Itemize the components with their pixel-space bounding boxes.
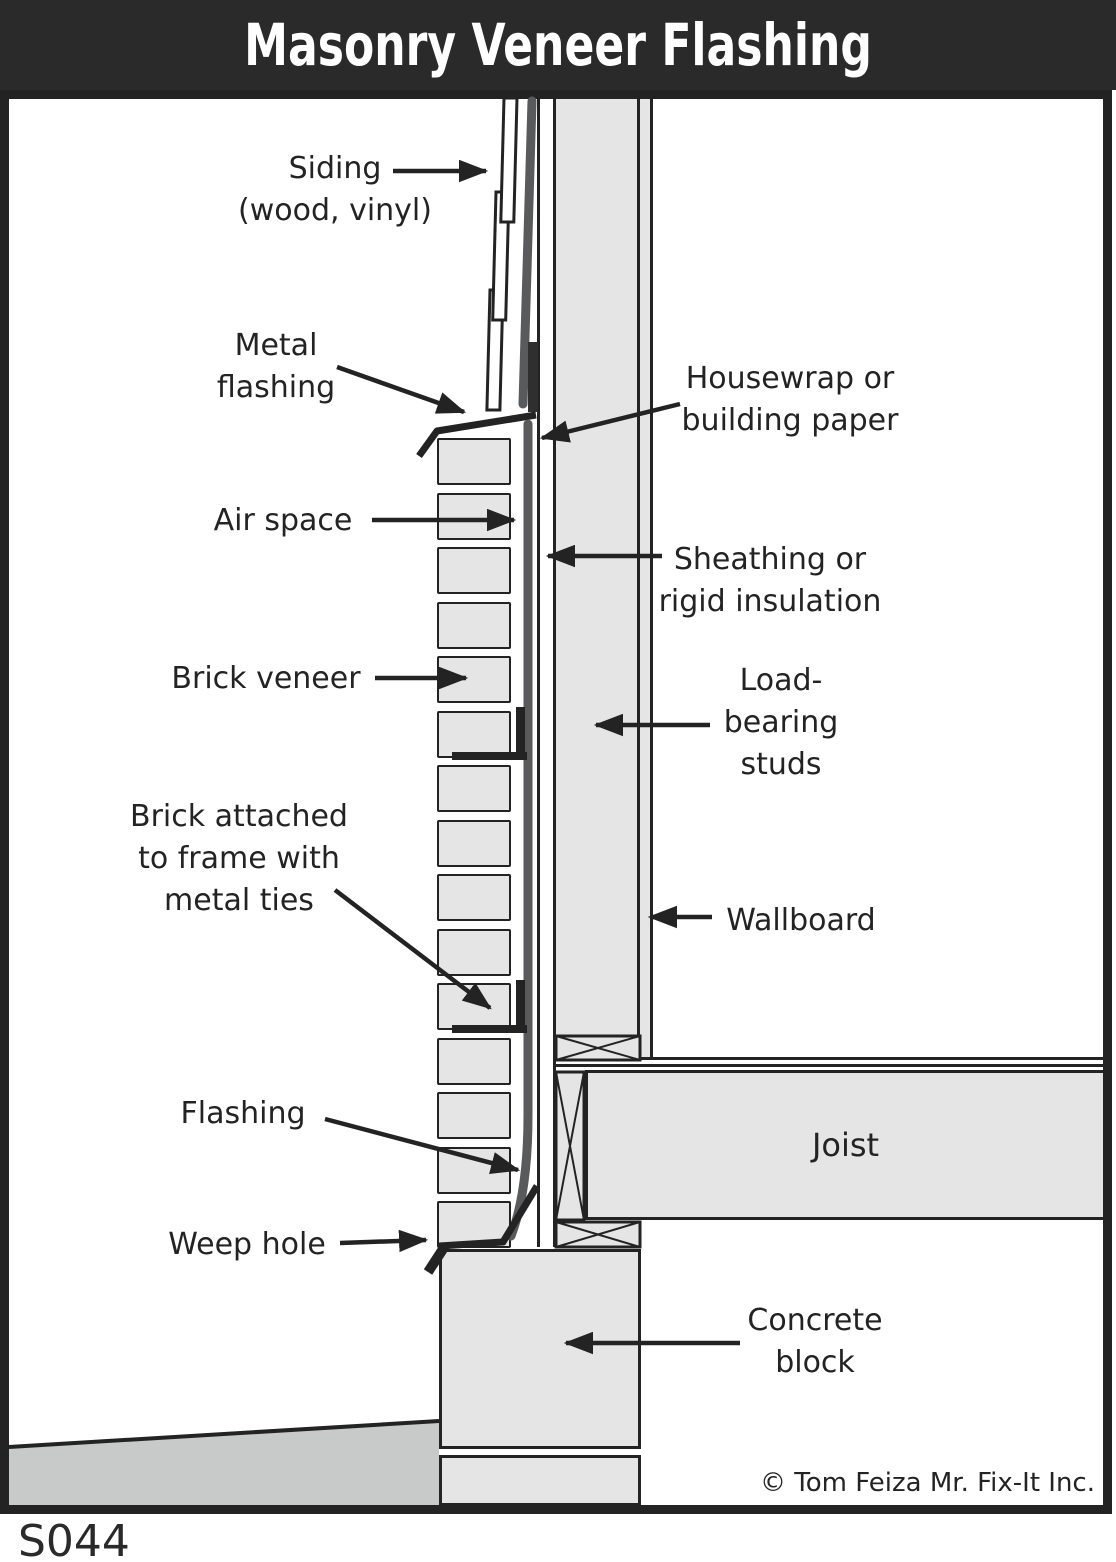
air-space-label: Air space (173, 500, 393, 542)
joist-box: Joist (585, 1070, 1106, 1220)
brick (437, 656, 511, 703)
subfloor-line-bottom (553, 1064, 1106, 1067)
brick (437, 1147, 511, 1194)
brick (437, 874, 511, 921)
rim-blocking-xbox (556, 1072, 584, 1220)
brick (437, 711, 511, 758)
housewrap-label: Housewrap or building paper (640, 358, 940, 442)
wallboard-label: Wallboard (676, 900, 926, 942)
concrete-block-label: Concrete block (690, 1300, 940, 1384)
brick (437, 493, 511, 540)
flashing-label: Flashing (118, 1093, 368, 1135)
page-title: Masonry Veneer Flashing (244, 11, 872, 79)
metal-ties-label: Brick attached to frame with metal ties (114, 796, 364, 922)
brick (437, 1038, 511, 1085)
siding-boards (487, 98, 517, 410)
concrete-block-upper (439, 1249, 641, 1449)
weep-hole-label: Weep hole (122, 1224, 372, 1266)
sheathing-label: Sheathing or rigid insulation (620, 539, 920, 623)
concrete-block-lower (439, 1455, 641, 1506)
brick (437, 602, 511, 649)
subfloor-line-top (553, 1057, 1106, 1060)
brick (437, 1201, 511, 1248)
copyright-text: © Tom Feiza Mr. Fix-It Inc. (640, 1468, 1095, 1498)
sill-plate-xbox (556, 1222, 640, 1247)
brick-veneer-label: Brick veneer (141, 658, 391, 700)
siding-label: Siding (wood, vinyl) (185, 148, 485, 232)
brick (437, 820, 511, 867)
diagram-page: Masonry Veneer Flashing Joist (0, 0, 1116, 1562)
brick (437, 765, 511, 812)
brick (437, 438, 511, 485)
figure-id: S044 (18, 1516, 130, 1562)
housewrap-lower-strip (511, 424, 528, 1236)
brick (437, 547, 511, 594)
load-bearing-studs-label: Load- bearing studs (656, 660, 906, 786)
grade-slope (9, 1421, 439, 1505)
sheathing-column (537, 98, 556, 1247)
housewrap-upper-strip (523, 101, 532, 404)
joist-label: Joist (812, 1126, 879, 1164)
brick (437, 1092, 511, 1139)
metal-flashing-label: Metal flashing (151, 325, 401, 409)
brick (437, 983, 511, 1030)
title-bar: Masonry Veneer Flashing (0, 0, 1116, 90)
brick (437, 929, 511, 976)
